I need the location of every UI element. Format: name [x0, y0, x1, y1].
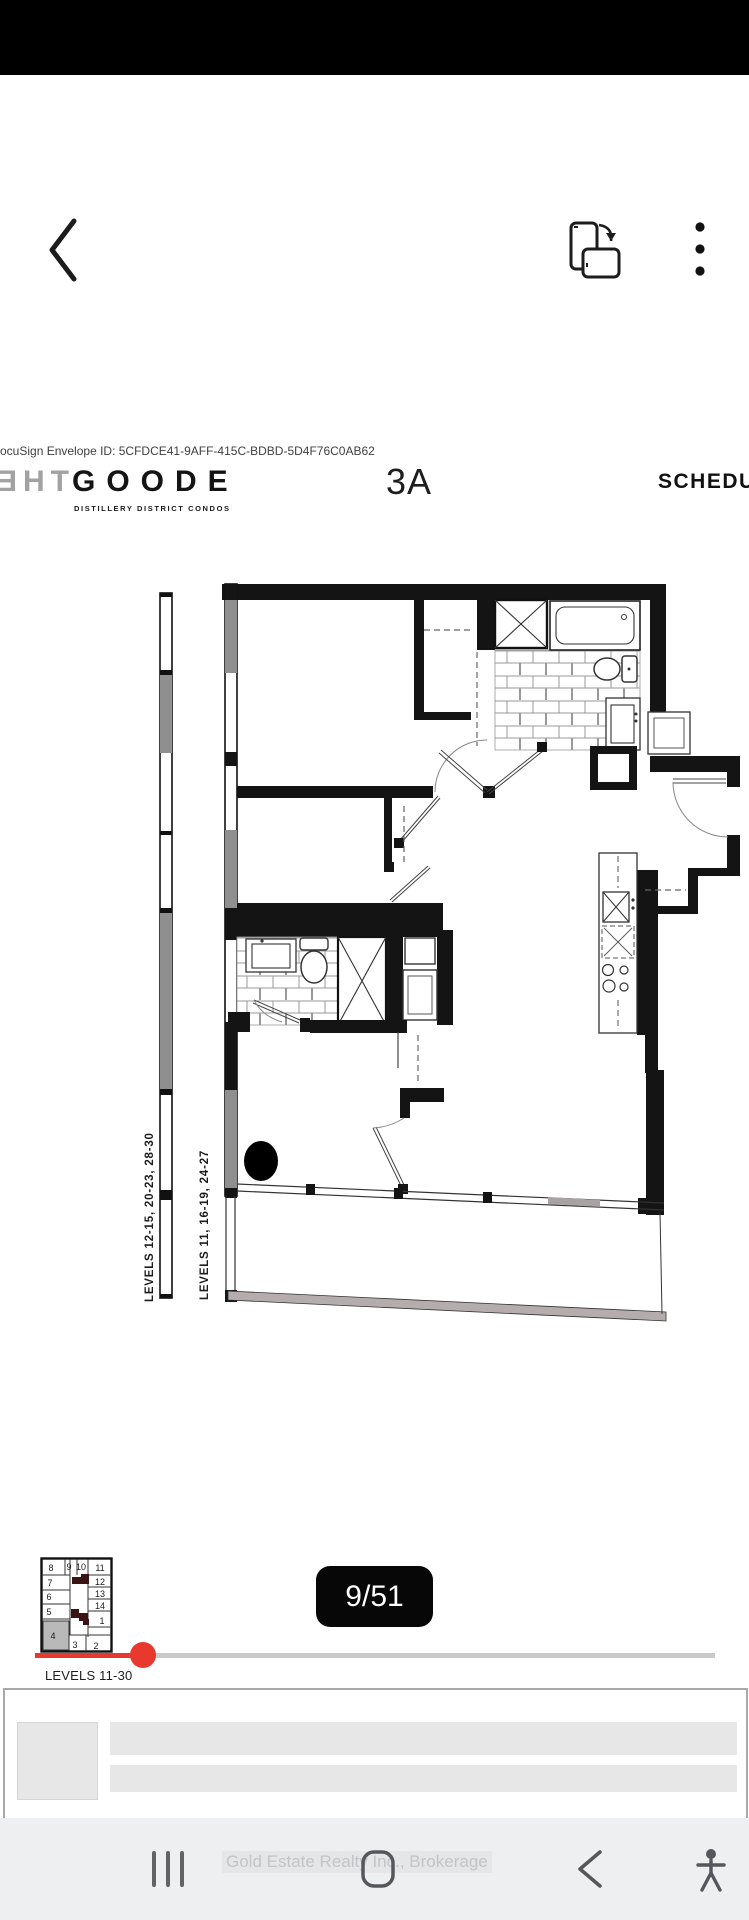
plan-label-left: LEVELS 12-15, 20-23, 28-30 — [144, 1132, 156, 1302]
home-icon — [363, 1852, 393, 1886]
status-bar — [0, 0, 749, 75]
banner-text-placeholder-2 — [110, 1765, 737, 1792]
docusign-envelope-id: ocuSign Envelope ID: 5CFDCE41-9AFF-415C-… — [0, 444, 520, 458]
svg-text:10: 10 — [76, 1562, 86, 1572]
rotate-screen-icon — [571, 223, 619, 277]
floor-plan: LEVELS 12-15, 20-23, 28-30 LEVELS 11, 16… — [100, 575, 749, 1330]
banner-text-placeholder-1 — [110, 1722, 737, 1755]
plan-label-right: LEVELS 11, 16-19, 24-27 — [199, 1150, 211, 1300]
page-slider-thumb[interactable] — [130, 1642, 156, 1668]
svg-text:14: 14 — [95, 1601, 105, 1611]
home-button[interactable] — [360, 1850, 396, 1888]
svg-text:7: 7 — [47, 1578, 52, 1588]
rotate-screen-button[interactable] — [566, 215, 622, 285]
toilet-1 — [594, 658, 620, 680]
recents-button[interactable] — [148, 1850, 190, 1888]
brokerage-watermark: Gold Estate Realty Inc., Brokerage — [222, 1851, 492, 1873]
back-icon — [52, 221, 74, 279]
kitchen — [599, 853, 637, 1033]
svg-text:9: 9 — [66, 1562, 71, 1572]
svg-text:3: 3 — [72, 1640, 77, 1650]
keyplan-caption: LEVELS 11-30 — [45, 1668, 132, 1683]
svg-text:13: 13 — [95, 1589, 105, 1599]
page-slider-fill — [35, 1653, 143, 1658]
overflow-menu-button[interactable] — [688, 219, 712, 281]
svg-text:12: 12 — [95, 1577, 105, 1587]
app-bar — [0, 75, 749, 215]
column-marker — [244, 1141, 278, 1181]
recents-icon — [154, 1853, 182, 1885]
bathtub — [550, 601, 640, 650]
window-legend-strip — [160, 593, 172, 1298]
accessibility-icon — [698, 1849, 724, 1890]
schedule-label: SCHEDU — [658, 470, 749, 494]
back-button[interactable] — [46, 217, 82, 283]
svg-text:11: 11 — [95, 1563, 104, 1573]
accessibility-button[interactable] — [692, 1846, 730, 1894]
svg-text:5: 5 — [46, 1607, 51, 1617]
banner-thumbnail-placeholder — [17, 1722, 98, 1800]
svg-text:2: 2 — [93, 1641, 98, 1651]
window-wall — [237, 1184, 664, 1210]
svg-text:1: 1 — [99, 1616, 104, 1626]
toilet-2 — [300, 938, 328, 950]
keyplan-highlighted-unit — [43, 1621, 69, 1650]
unit-code: 3A — [386, 461, 432, 503]
exterior-walls — [222, 584, 740, 1215]
bedroom1 — [237, 600, 495, 798]
second-bathroom — [228, 903, 453, 1033]
keyplan-thumbnail: 8 9 10 11 7 12 6 13 5 14 1 4 3 2 — [40, 1557, 114, 1655]
balcony — [225, 1196, 666, 1321]
logo-the: ƎHT — [0, 465, 75, 499]
svg-text:8: 8 — [48, 1563, 53, 1573]
page-indicator: 9/51 — [316, 1566, 433, 1627]
washer — [405, 938, 435, 964]
logo-subtitle: DISTILLERY DISTRICT CONDOS — [74, 504, 231, 513]
svg-text:6: 6 — [46, 1592, 51, 1602]
overflow-menu-icon — [695, 222, 704, 275]
back-nav-icon — [580, 1852, 600, 1886]
svg-text:4: 4 — [50, 1631, 55, 1641]
logo-goode: GOODE — [72, 465, 239, 499]
left-window-wall — [225, 584, 237, 1198]
back-nav-button[interactable] — [574, 1849, 606, 1889]
